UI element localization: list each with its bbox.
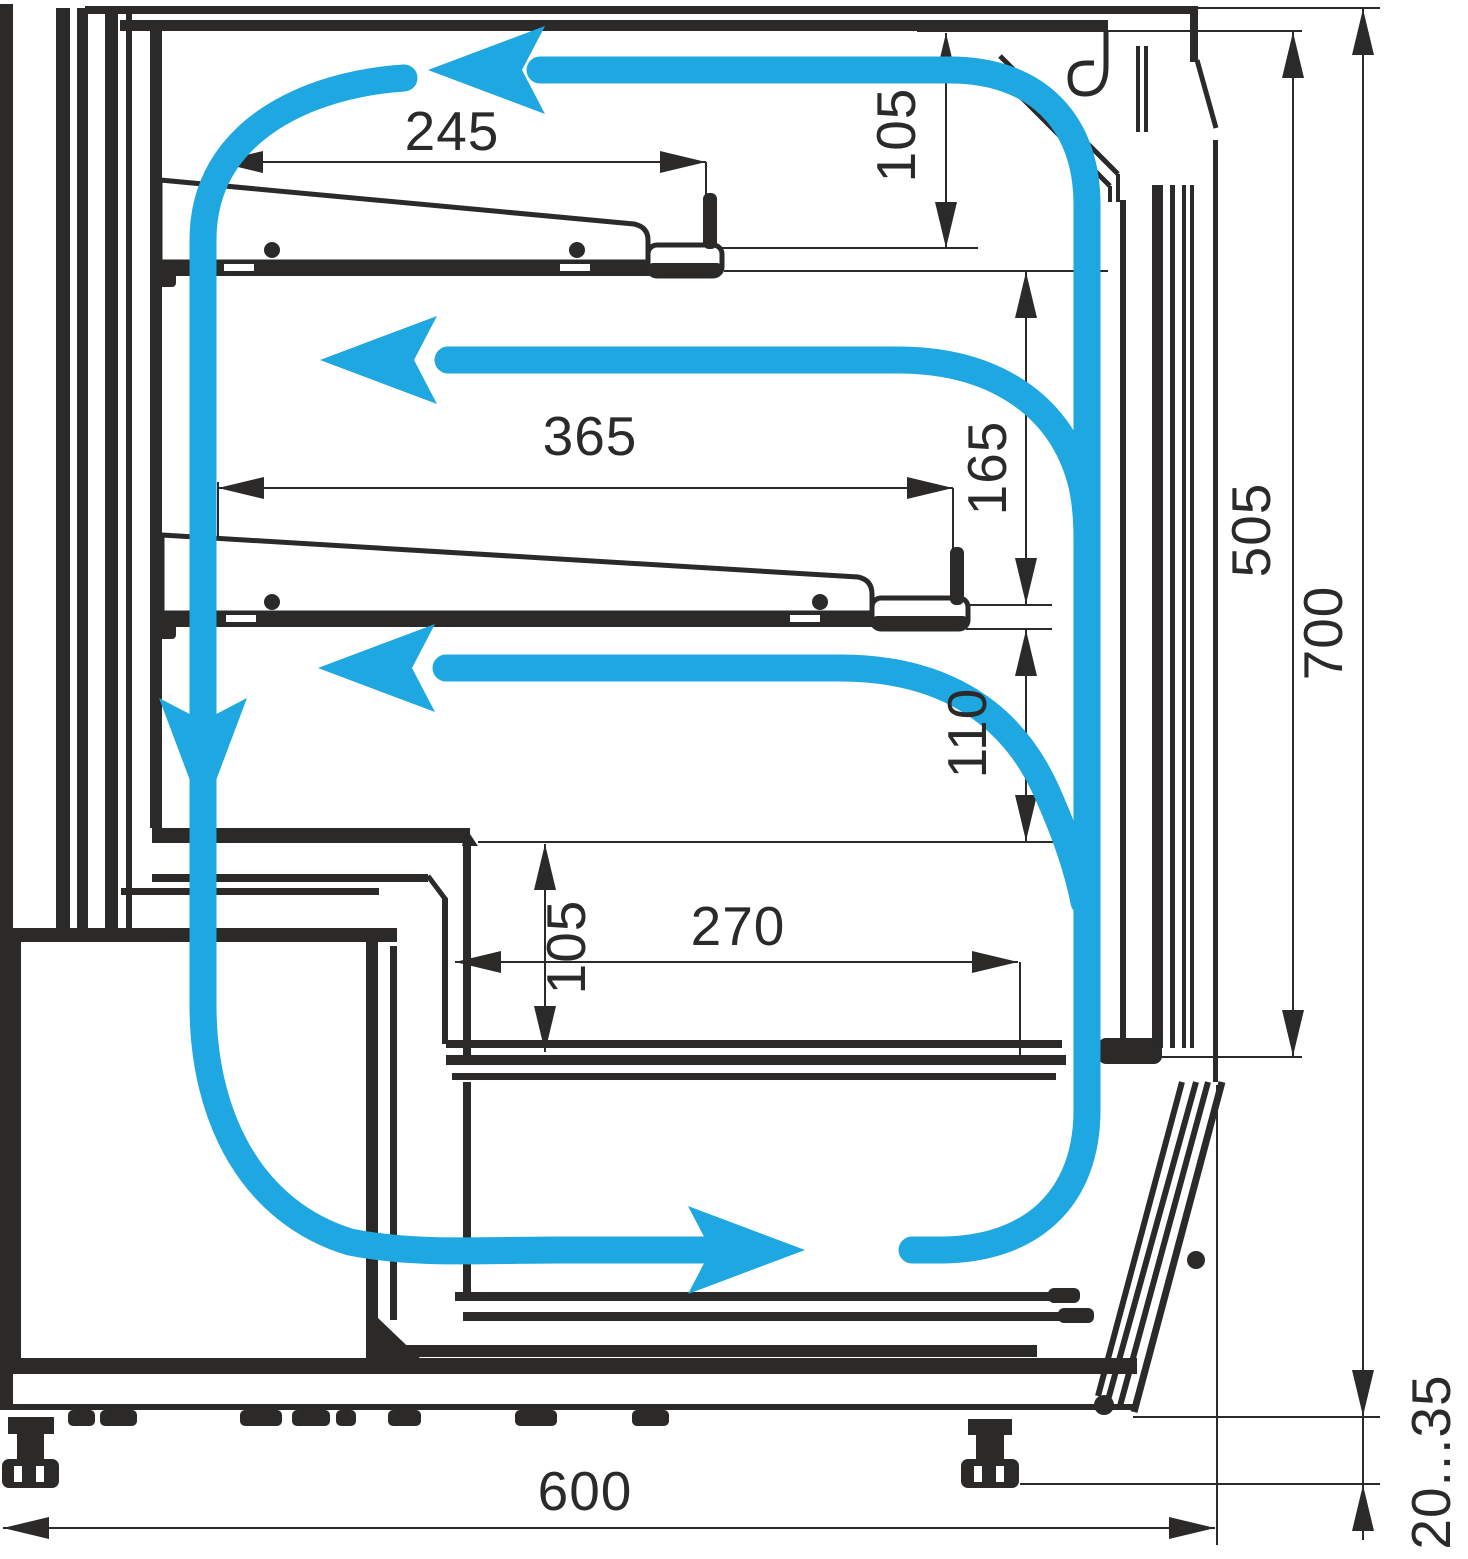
dim-opening-height (1282, 32, 1304, 1056)
adjustable-foot-right (961, 1419, 1019, 1488)
airflow-arrowhead-mid-upper (320, 316, 437, 404)
dim-shelf-lower-depth (218, 477, 953, 499)
adjustable-foot-left (2, 1417, 59, 1488)
airflow-arrowhead-mid-lower (318, 624, 435, 712)
display-case-airflow-diagram: 245 105 365 165 505 700 110 105 270 600 … (0, 0, 1468, 1559)
back-wall-panel (0, 4, 176, 1410)
label-shelf-spacing: 165 (956, 421, 1018, 516)
label-step-height: 105 (535, 900, 597, 995)
glass-bottom-frame (1098, 1038, 1162, 1064)
label-canopy-gap: 105 (865, 88, 927, 183)
bottom-deck (446, 1040, 1066, 1080)
front-glass (1098, 140, 1218, 1082)
base-frame (0, 1358, 1137, 1426)
shelf-lower-front-stop (950, 547, 964, 605)
label-shelf-to-step: 110 (936, 688, 998, 779)
label-shelf-lower-depth: 365 (543, 405, 638, 467)
label-foot-adjustment: 20...35 (1400, 1374, 1462, 1549)
technical-drawing-page: 245 105 365 165 505 700 110 105 270 600 … (0, 0, 1468, 1559)
dim-overall-height (1352, 9, 1374, 1416)
label-overall-depth: 600 (538, 1460, 633, 1522)
dim-foot-adjustment (1352, 1417, 1374, 1540)
bottom-well (400, 1082, 1094, 1357)
shelf-lower (158, 535, 968, 629)
lamp-channel-profile (1070, 31, 1106, 94)
label-shelf-upper-depth: 245 (405, 100, 500, 162)
label-overall-height: 700 (1292, 586, 1354, 681)
shelf-upper (156, 180, 722, 276)
shelf-upper-front-stop (703, 193, 717, 249)
label-opening-height: 505 (1220, 483, 1282, 578)
label-well-depth: 270 (691, 895, 786, 957)
dimension-labels: 245 105 365 165 505 700 110 105 270 600 … (405, 88, 1462, 1550)
dim-shelf-spacing (1015, 272, 1037, 604)
